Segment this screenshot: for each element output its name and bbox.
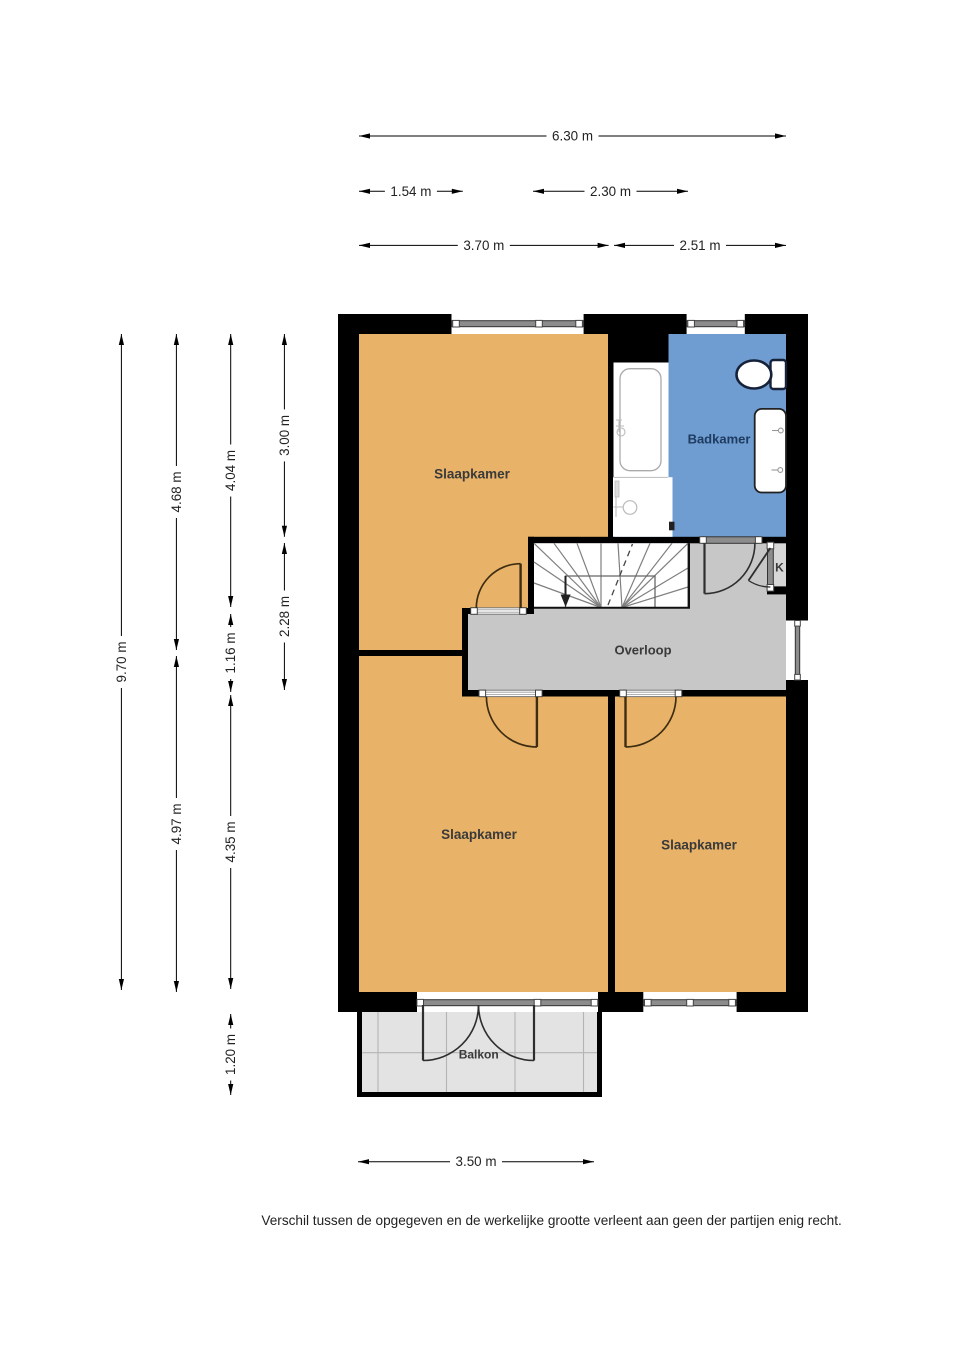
svg-text:Badkamer: Badkamer [688,432,751,447]
svg-text:Slaapkamer: Slaapkamer [434,467,511,482]
svg-text:2.28 m: 2.28 m [277,596,292,637]
svg-text:6.30 m: 6.30 m [552,129,593,144]
svg-text:3.70 m: 3.70 m [463,238,504,253]
svg-text:3.50 m: 3.50 m [456,1154,497,1169]
svg-text:4.35 m: 4.35 m [223,822,238,863]
svg-text:9.70 m: 9.70 m [114,642,129,683]
svg-text:2.30 m: 2.30 m [590,184,631,199]
svg-text:K: K [775,561,784,575]
svg-text:1.20 m: 1.20 m [223,1034,238,1075]
svg-text:Overloop: Overloop [614,643,671,658]
svg-text:Slaapkamer: Slaapkamer [661,838,738,853]
svg-text:2.51 m: 2.51 m [680,238,721,253]
svg-text:3.00 m: 3.00 m [277,415,292,456]
svg-text:Verschil tussen de opgegeven e: Verschil tussen de opgegeven en de werke… [261,1213,841,1228]
svg-text:4.04 m: 4.04 m [223,450,238,491]
svg-text:1.16 m: 1.16 m [223,633,238,674]
svg-text:Balkon: Balkon [459,1048,499,1062]
svg-text:4.97 m: 4.97 m [169,804,184,845]
svg-text:1.54 m: 1.54 m [390,184,431,199]
svg-text:Slaapkamer: Slaapkamer [441,827,518,842]
svg-text:4.68 m: 4.68 m [169,472,184,513]
